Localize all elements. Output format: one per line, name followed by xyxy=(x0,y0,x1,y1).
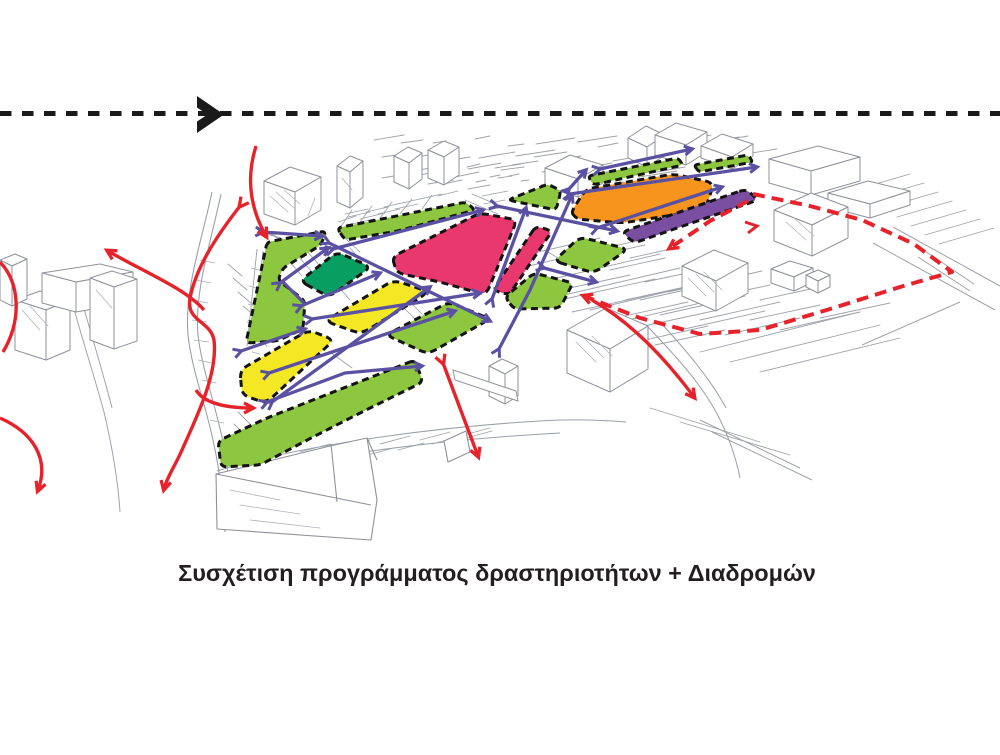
svg-text:Συσχέτιση προγράμματος δραστηρ: Συσχέτιση προγράμματος δραστηριοτήτων + … xyxy=(178,560,816,586)
